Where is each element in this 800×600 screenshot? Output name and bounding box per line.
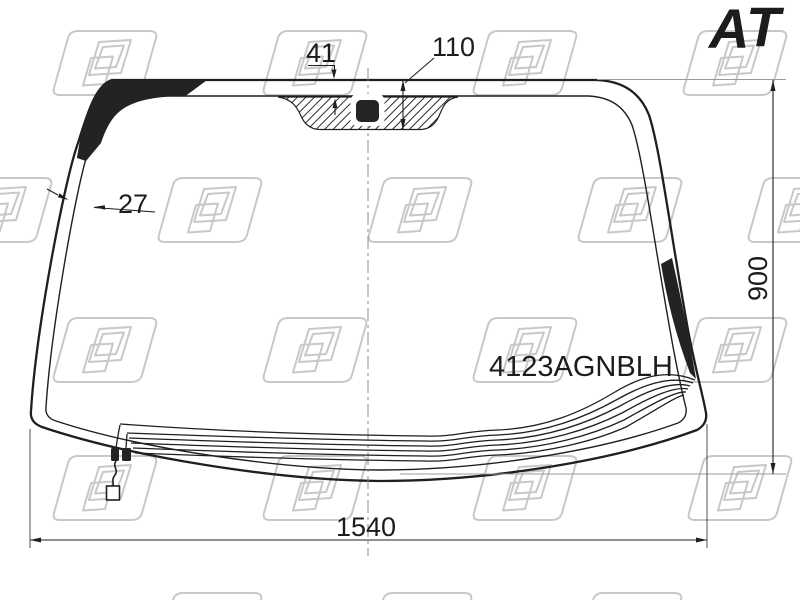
mirror-mount <box>351 94 385 126</box>
brand-watermark-icon <box>0 178 51 242</box>
mirror-mount-pad-icon <box>356 100 379 122</box>
brand-watermark-icon <box>684 318 787 382</box>
brand-watermark-icon <box>264 456 367 520</box>
at-logo: T A <box>707 0 785 60</box>
arrowhead <box>401 80 406 91</box>
brand-watermark-icon <box>369 178 472 242</box>
arrowhead <box>771 463 776 474</box>
at-logo-letter-t: T <box>746 0 785 58</box>
brand-watermark-icon <box>579 178 682 242</box>
dimension-110-label: 110 <box>432 32 475 62</box>
dimension-900-label: 900 <box>743 256 773 301</box>
brand-watermark-icon <box>579 593 682 600</box>
windshield-technical-drawing: 41 110 27 900 1540 4123AGNBLH T <box>0 0 800 600</box>
brand-watermark-icon <box>54 318 157 382</box>
arrowhead <box>332 70 337 80</box>
heater-line <box>129 385 690 447</box>
extension-line <box>400 80 786 475</box>
part-number-label: 4123AGNBLH <box>489 351 673 383</box>
brand-watermark-icon <box>54 456 157 520</box>
arrowhead <box>30 538 41 543</box>
connector-wire <box>113 461 116 486</box>
connector-terminal <box>122 448 131 461</box>
dimension-1540-label: 1540 <box>336 512 396 542</box>
dimension-900: 900 <box>400 80 786 475</box>
arrowhead <box>696 538 707 543</box>
brand-watermark-icon <box>264 318 367 382</box>
brand-watermark-icon <box>369 593 472 600</box>
heater-connector-plug-icon <box>107 486 120 500</box>
heater-line <box>127 380 693 441</box>
glass-inner-edge <box>46 96 686 470</box>
dimension-27-label: 27 <box>118 189 148 219</box>
brand-watermark-icon <box>159 178 262 242</box>
connector-terminal <box>111 448 119 461</box>
at-logo-letter-a: A <box>707 0 749 60</box>
windshield-diagram-page: 41 110 27 900 1540 4123AGNBLH T <box>0 0 800 600</box>
heater-busbar <box>116 425 127 448</box>
brand-watermark-icon <box>749 178 800 242</box>
brand-watermark-icon <box>474 31 577 95</box>
dimension-41-label: 41 <box>306 38 336 68</box>
brand-watermark-icon <box>159 593 262 600</box>
brand-watermark-icon <box>689 456 792 520</box>
heater-element <box>116 375 695 461</box>
